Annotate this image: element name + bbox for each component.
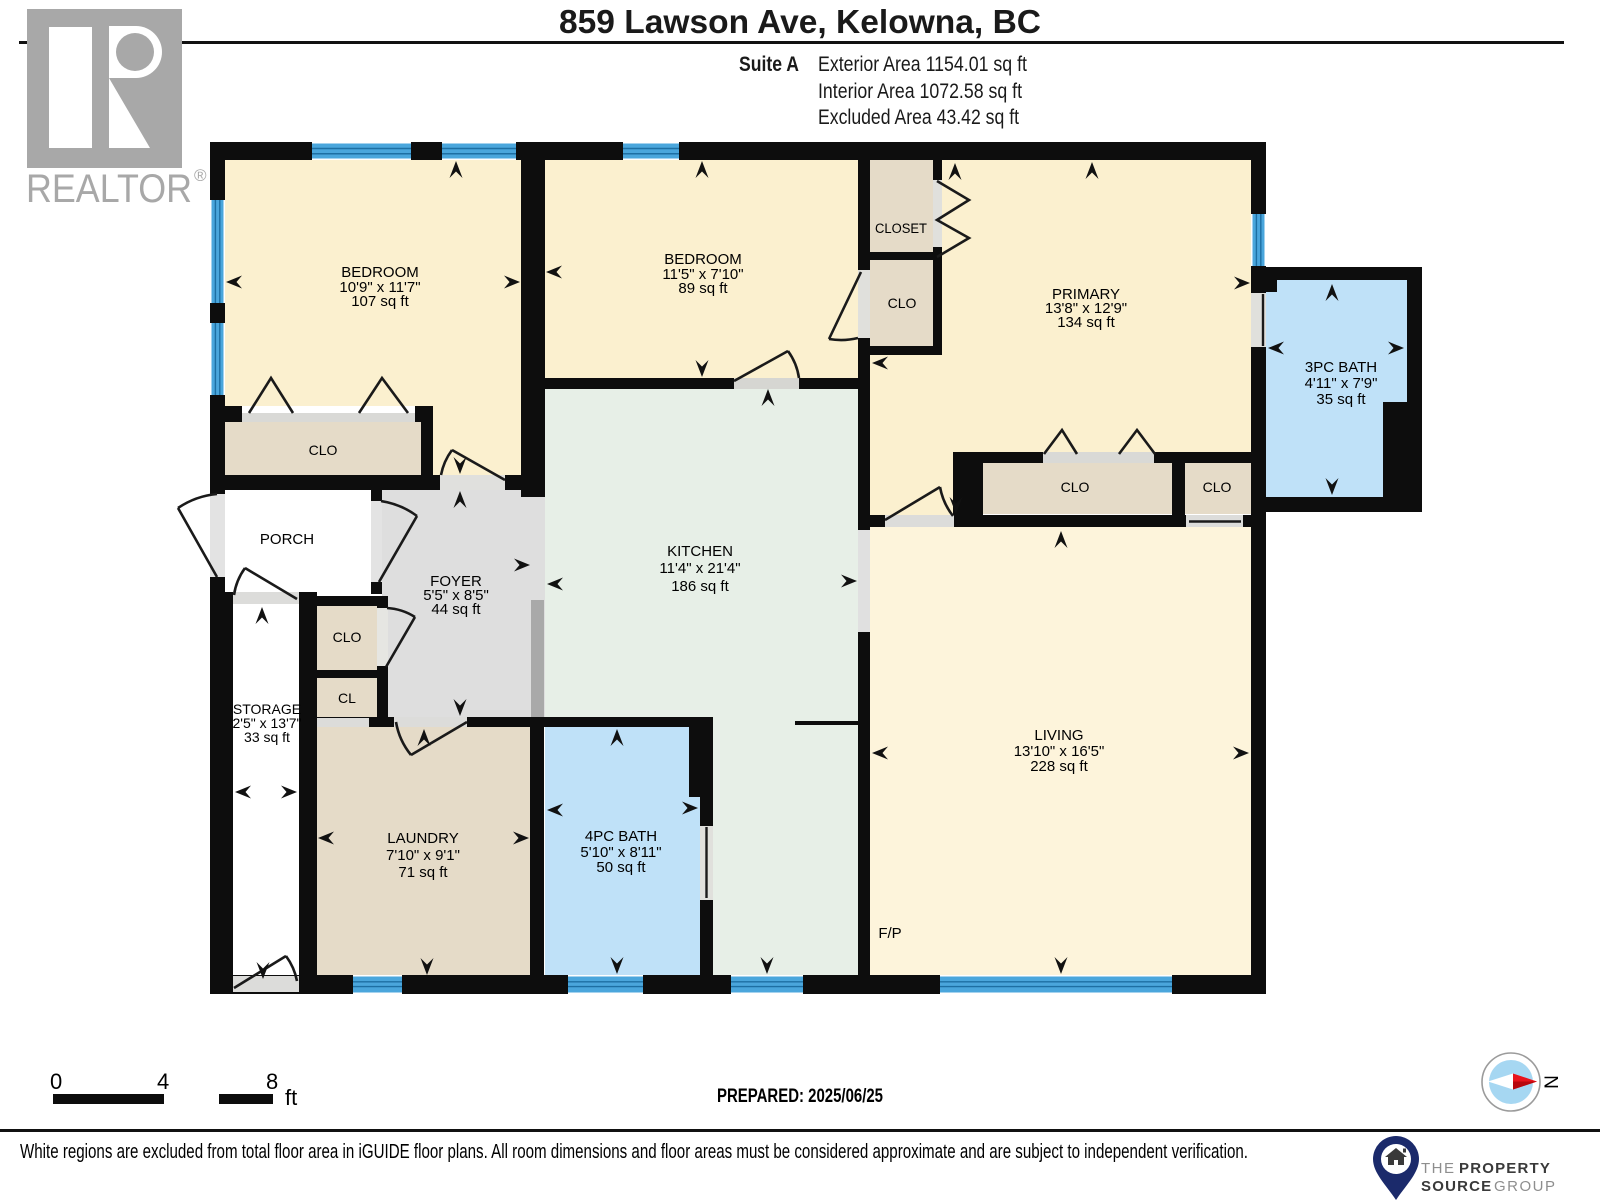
svg-text:134 sq ft: 134 sq ft [1057, 314, 1115, 331]
svg-text:0: 0 [50, 1069, 62, 1094]
svg-text:186 sq ft: 186 sq ft [671, 578, 729, 595]
svg-text:35 sq ft: 35 sq ft [1316, 391, 1366, 408]
svg-text:Exterior Area 1154.01 sq ft: Exterior Area 1154.01 sq ft [818, 53, 1027, 76]
svg-text:CLOSET: CLOSET [875, 221, 927, 236]
svg-text:CLO: CLO [333, 629, 362, 645]
svg-text:11'4" x 21'4": 11'4" x 21'4" [659, 560, 740, 577]
svg-text:44 sq ft: 44 sq ft [431, 601, 481, 618]
svg-text:PORCH: PORCH [260, 531, 314, 548]
svg-text:PROPERTY: PROPERTY [1459, 1160, 1551, 1177]
svg-text:GROUP: GROUP [1494, 1178, 1557, 1195]
svg-text:Interior Area 1072.58 sq ft: Interior Area 1072.58 sq ft [818, 80, 1022, 103]
svg-text:CLO: CLO [1203, 479, 1232, 495]
svg-text:White regions are excluded fro: White regions are excluded from total fl… [20, 1141, 1248, 1163]
svg-text:107 sq ft: 107 sq ft [351, 293, 409, 310]
svg-text:F/P: F/P [878, 925, 901, 942]
svg-text:4PC BATH: 4PC BATH [585, 828, 657, 845]
svg-text:4'11" x 7'9": 4'11" x 7'9" [1305, 375, 1378, 392]
svg-text:ft: ft [285, 1085, 297, 1110]
svg-text:7'10" x 9'1": 7'10" x 9'1" [386, 847, 460, 864]
svg-text:®: ® [194, 166, 207, 185]
svg-text:CLO: CLO [309, 442, 338, 458]
svg-text:8: 8 [266, 1069, 278, 1094]
svg-text:SOURCE: SOURCE [1421, 1178, 1492, 1195]
svg-text:Excluded Area 43.42 sq ft: Excluded Area 43.42 sq ft [818, 106, 1019, 129]
svg-text:LIVING: LIVING [1034, 727, 1083, 744]
svg-text:CLO: CLO [888, 295, 917, 311]
svg-text:THE: THE [1421, 1160, 1456, 1177]
svg-text:CL: CL [338, 690, 356, 706]
svg-text:50 sq ft: 50 sq ft [596, 859, 646, 876]
svg-text:3PC BATH: 3PC BATH [1305, 359, 1377, 376]
svg-text:859 Lawson Ave, Kelowna, BC: 859 Lawson Ave, Kelowna, BC [559, 3, 1041, 40]
svg-text:N: N [1542, 1075, 1563, 1089]
svg-text:LAUNDRY: LAUNDRY [387, 830, 458, 847]
svg-text:CLO: CLO [1061, 479, 1090, 495]
svg-text:33 sq ft: 33 sq ft [244, 729, 290, 745]
svg-text:KITCHEN: KITCHEN [667, 543, 733, 560]
svg-text:PREPARED: 2025/06/25: PREPARED: 2025/06/25 [717, 1086, 883, 1107]
svg-text:Suite A: Suite A [739, 53, 799, 76]
svg-text:71 sq ft: 71 sq ft [398, 864, 448, 881]
svg-text:4: 4 [157, 1069, 169, 1094]
svg-text:REALTOR: REALTOR [26, 167, 192, 211]
svg-text:228 sq ft: 228 sq ft [1030, 758, 1088, 775]
svg-text:89 sq ft: 89 sq ft [678, 280, 728, 297]
